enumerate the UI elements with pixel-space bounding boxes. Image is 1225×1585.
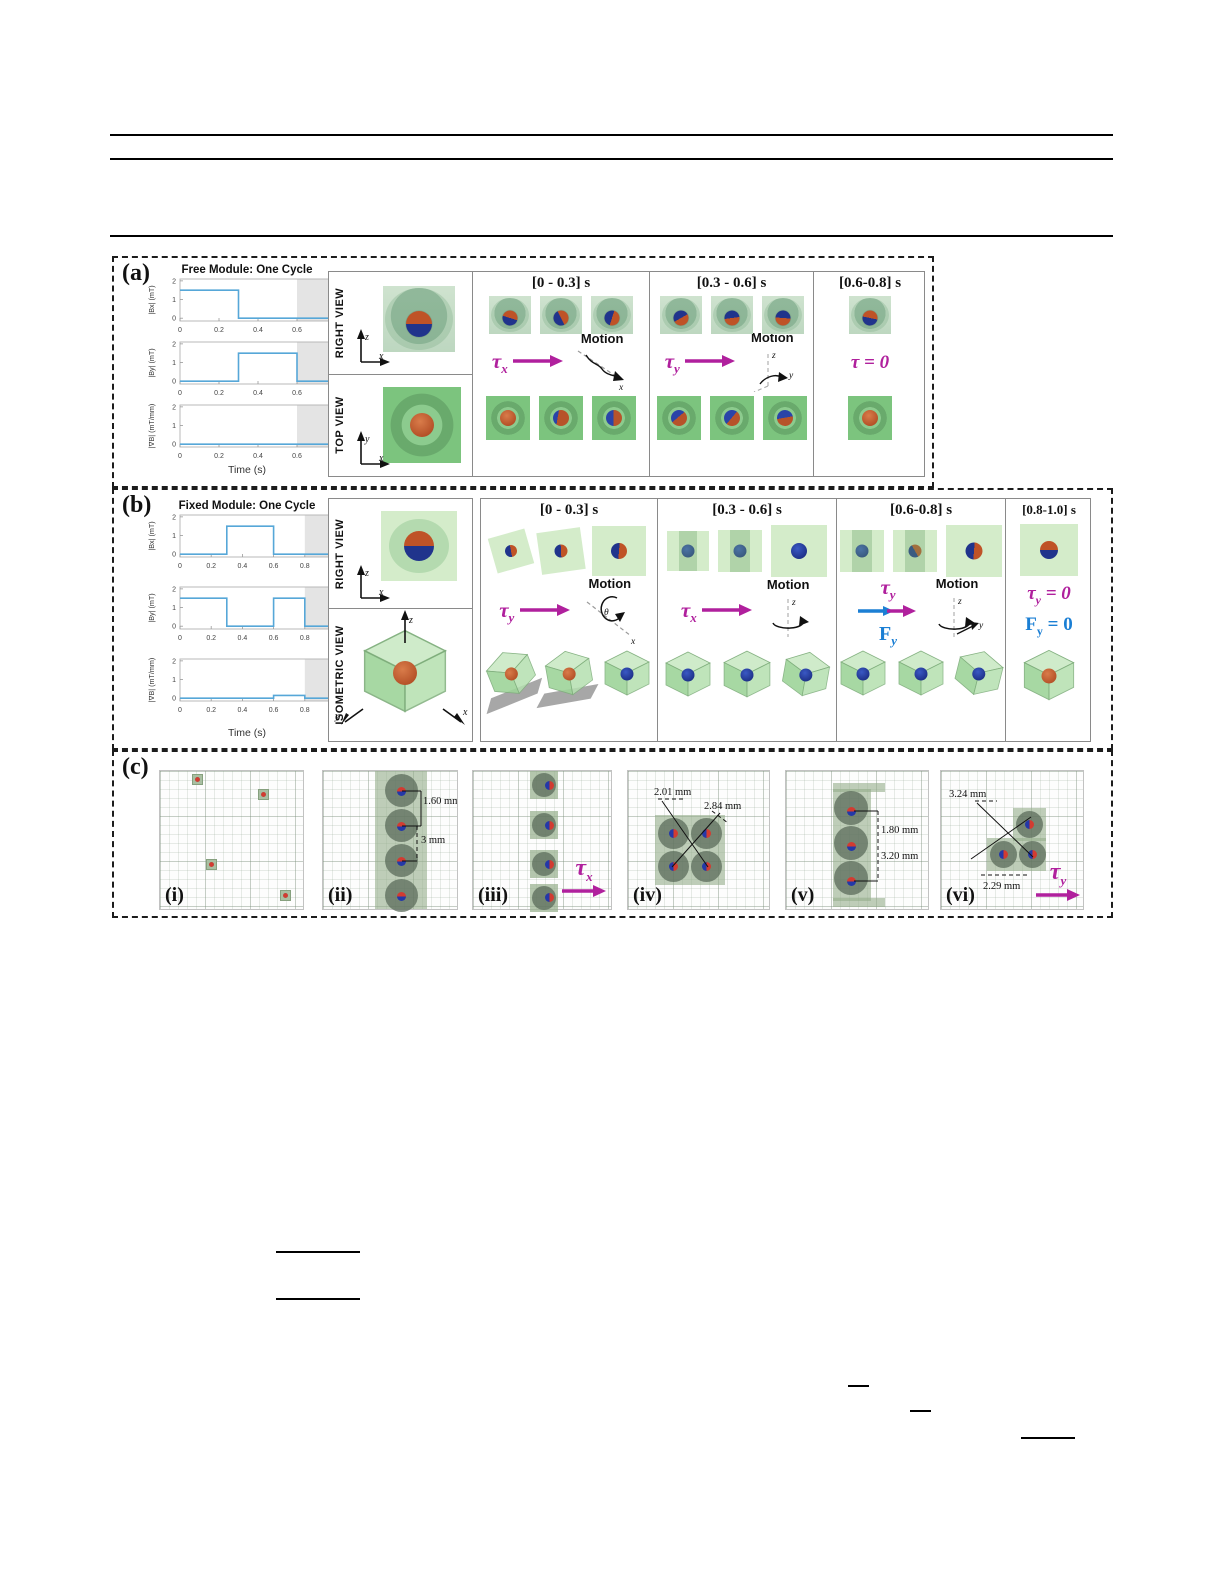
- time-column: [0.3 - 0.6] s τx Motion z: [657, 499, 836, 741]
- force-symbol: F: [879, 623, 891, 645]
- svg-text:|By| (mT): |By| (mT): [147, 348, 156, 377]
- torque-label-block: τx: [681, 598, 753, 626]
- module-image: [1020, 524, 1078, 576]
- module-image: [771, 525, 827, 577]
- svg-text:|By| (mT): |By| (mT): [147, 593, 156, 622]
- svg-text:2: 2: [172, 404, 176, 411]
- module-image: [657, 396, 701, 440]
- chart-title: Fixed Module: One Cycle: [146, 500, 348, 512]
- svg-text:1: 1: [172, 297, 176, 304]
- chart-plots: 01200.20.40.60.8|Bx| (mT)01200.20.40.60.…: [146, 277, 348, 463]
- module-image: [192, 774, 203, 785]
- time-column: [0 - 0.3] s τx Motion: [473, 272, 649, 476]
- torque-symbol: τ: [492, 349, 501, 373]
- dimension-label: 1.80 mm: [881, 825, 918, 836]
- panel-c-label: (c): [122, 754, 149, 781]
- svg-text:0.2: 0.2: [214, 390, 224, 397]
- view-box: RIGHT VIEW z x ISOMETRIC VIEW: [328, 498, 473, 742]
- frame-strip: [650, 396, 813, 440]
- module-image: [540, 645, 598, 701]
- torque-arrow: [684, 354, 736, 368]
- module-image: [718, 530, 762, 572]
- svg-text:1: 1: [172, 360, 176, 367]
- svg-text:0: 0: [172, 316, 176, 323]
- dimension-label: 3 mm: [421, 835, 445, 846]
- magnet-sphere: [404, 531, 434, 561]
- magnet-dot: [545, 860, 554, 869]
- top-view-cell: TOP VIEW y x: [329, 375, 472, 477]
- module-image: [660, 296, 702, 334]
- axis-label: y: [334, 711, 340, 722]
- module-image: [1021, 648, 1077, 702]
- torque-arrow: [561, 885, 607, 898]
- torque-symbol: τ: [1050, 859, 1061, 885]
- torque-label-block: τy: [499, 598, 571, 626]
- chart-xlabel: Time (s): [146, 464, 348, 476]
- axis-label: y: [364, 434, 370, 445]
- svg-text:2: 2: [172, 341, 176, 348]
- svg-text:0.2: 0.2: [206, 563, 216, 570]
- svg-text:1: 1: [172, 533, 176, 540]
- torque-arrow: [519, 603, 571, 617]
- view-box: RIGHT VIEW z x TOP VIEW: [328, 271, 473, 477]
- motion-axis-label: y: [978, 621, 984, 631]
- module-image: [849, 296, 891, 334]
- torque-label-block: τy: [1035, 859, 1081, 907]
- frame-strip: [658, 649, 836, 699]
- module-image: [667, 531, 709, 571]
- motion-label: Motion: [763, 577, 813, 592]
- time-range-header: [0.8-1.0] s: [1006, 502, 1092, 518]
- torque-subscript: x: [501, 361, 508, 376]
- svg-text:0.2: 0.2: [214, 453, 224, 460]
- right-view-cell: RIGHT VIEW z x: [329, 499, 472, 609]
- svg-text:0: 0: [178, 563, 182, 570]
- svg-text:|∇B| (mT/mm): |∇B| (mT/mm): [147, 658, 156, 702]
- axes-glyph: z y x: [329, 609, 474, 741]
- torque-symbol: τ: [665, 349, 674, 373]
- dimension-label: 2.84 mm: [704, 801, 741, 812]
- isometric-view-cell: ISOMETRIC VIEW z y x: [329, 609, 472, 741]
- frame-strip: [473, 396, 649, 440]
- force-subscript: y: [891, 633, 897, 648]
- module-image: [762, 296, 804, 334]
- torque-label-block: τy: [665, 349, 737, 377]
- svg-text:1: 1: [172, 423, 176, 430]
- module-image: [711, 296, 753, 334]
- subpanel-label: (vi): [946, 884, 975, 907]
- module-image: [489, 296, 531, 334]
- motion-sketch: Motion z: [763, 577, 813, 648]
- module-image: [592, 526, 646, 576]
- time-column: [0 - 0.3] s τy Motion: [481, 499, 657, 741]
- module-image: [838, 649, 888, 697]
- frame-strip: [481, 649, 657, 697]
- svg-text:|Bx| (mT): |Bx| (mT): [147, 285, 156, 314]
- module-image: [539, 396, 583, 440]
- subpanel-iv: 2.01 mm 2.84 mm (iv): [627, 770, 770, 910]
- torque-arrow: [701, 603, 753, 617]
- torque-symbol: τ: [575, 855, 586, 881]
- torque-label-block: τx: [492, 349, 564, 377]
- subpanel-iii: τx (iii): [472, 770, 612, 910]
- frame-strip: [481, 523, 657, 579]
- motion-label: Motion: [929, 576, 985, 591]
- svg-text:0: 0: [178, 390, 182, 397]
- chart-xlabel: Time (s): [146, 727, 348, 739]
- axis-label: x: [378, 351, 384, 362]
- timeline-columns: [0 - 0.3] s τx Motion: [472, 271, 925, 477]
- svg-text:0.6: 0.6: [292, 390, 302, 397]
- svg-text:0.4: 0.4: [238, 635, 248, 642]
- subpanel-label: (ii): [328, 884, 352, 907]
- dimension-label: 3.20 mm: [881, 851, 918, 862]
- module-image: [602, 649, 652, 697]
- torque-symbol: τ: [681, 598, 690, 622]
- time-range-header: [0 - 0.3] s: [481, 502, 657, 519]
- module-image: [721, 649, 773, 699]
- svg-text:2: 2: [172, 658, 176, 665]
- text-fragment-rule: [1021, 1437, 1075, 1439]
- svg-text:0: 0: [172, 696, 176, 703]
- svg-text:1: 1: [172, 605, 176, 612]
- motion-axis-label: x: [630, 637, 636, 644]
- torque-zero-label: τ = 0: [851, 352, 889, 374]
- module-image: [383, 387, 461, 463]
- axis-label: x: [378, 453, 384, 464]
- svg-text:0.4: 0.4: [238, 563, 248, 570]
- module-image: [540, 296, 582, 334]
- svg-text:0.2: 0.2: [206, 707, 216, 714]
- figure-panel-c: (c) (i) 1.60 mm: [112, 750, 1113, 918]
- fixed-module-chart: Fixed Module: One Cycle 01200.20.40.60.8…: [146, 500, 348, 739]
- module-image: [763, 396, 807, 440]
- module-image: [479, 641, 543, 704]
- svg-text:0.4: 0.4: [253, 390, 263, 397]
- torque-subscript: y: [1060, 873, 1066, 888]
- text-fragment-rule: [848, 1385, 869, 1387]
- frame-strip: [658, 523, 836, 579]
- magnet-dot: [545, 893, 554, 902]
- svg-text:0.4: 0.4: [253, 327, 263, 334]
- torque-symbol: τ: [880, 575, 889, 599]
- free-module-chart: Free Module: One Cycle 01200.20.40.60.8|…: [146, 264, 348, 476]
- svg-text:2: 2: [172, 586, 176, 593]
- magnet-sphere: [410, 413, 434, 437]
- subpanel-v: 1.80 mm 3.20 mm (v): [785, 770, 929, 910]
- svg-text:0.6: 0.6: [269, 635, 279, 642]
- module-image: [893, 530, 937, 572]
- axes-glyph: y x: [353, 430, 393, 470]
- figure-panel-b: (b) Fixed Module: One Cycle 01200.20.40.…: [112, 488, 1113, 750]
- torque-symbol: τ: [499, 598, 508, 622]
- module-image: [840, 530, 884, 572]
- module-image: [949, 644, 1009, 703]
- motion-axis-label: z: [771, 351, 776, 361]
- magnet-dot: [545, 781, 554, 790]
- module-image: [486, 396, 530, 440]
- module-image: [710, 396, 754, 440]
- dimension-label: 1.60 mm: [423, 796, 457, 807]
- svg-text:0.2: 0.2: [214, 327, 224, 334]
- svg-text:|Bx| (mT): |Bx| (mT): [147, 521, 156, 550]
- motion-axis-label: x: [618, 383, 624, 391]
- dimension-label: 2.29 mm: [983, 881, 1020, 892]
- module-image: [383, 286, 455, 352]
- dimension-label: 2.01 mm: [654, 787, 691, 798]
- motion-axis-label: z: [791, 598, 796, 608]
- svg-text:0: 0: [172, 442, 176, 449]
- svg-text:0.4: 0.4: [253, 453, 263, 460]
- time-column: [0.3 - 0.6] s τy Motion: [649, 272, 813, 476]
- module-image: [896, 649, 946, 697]
- subpanel-label: (iii): [478, 884, 508, 907]
- torque-force-arrow: [857, 604, 919, 618]
- time-range-header: [0.6-0.8] s: [814, 275, 926, 292]
- torque-arrow: [1035, 889, 1081, 902]
- frame-strip: [1006, 648, 1092, 702]
- module-image: [280, 890, 291, 901]
- module-image: [488, 528, 534, 573]
- module-image: [206, 859, 217, 870]
- svg-text:0.2: 0.2: [206, 635, 216, 642]
- header-rule: [110, 134, 1113, 136]
- motion-sketch: Motion θ x: [581, 576, 639, 649]
- module-image: [258, 789, 269, 800]
- subpanel-label: (v): [791, 884, 814, 907]
- subpanel-label: (i): [165, 884, 184, 907]
- module-image: [777, 646, 835, 702]
- axis-label: z: [408, 615, 413, 626]
- frame-strip: [473, 296, 649, 334]
- motion-axis-label: y: [788, 371, 794, 381]
- torque-subscript: y: [509, 610, 515, 625]
- frame-strip: [814, 296, 926, 334]
- svg-text:0.6: 0.6: [292, 327, 302, 334]
- text-fragment-rule: [276, 1251, 360, 1253]
- module-image: [848, 396, 892, 440]
- subpanel-i: (i): [159, 770, 304, 910]
- motion-sketch: Motion z y: [929, 576, 985, 649]
- frame-strip: [837, 523, 1005, 579]
- motion-label: Motion: [581, 576, 639, 591]
- text-fragment-rule: [910, 1410, 931, 1412]
- svg-text:0: 0: [178, 327, 182, 334]
- motion-sketch: Motion x: [574, 331, 630, 396]
- module-image: [946, 525, 1002, 577]
- torque-force-block: τy Fy: [857, 575, 919, 648]
- time-range-header: [0 - 0.3] s: [473, 275, 649, 292]
- svg-text:0.8: 0.8: [300, 563, 310, 570]
- svg-text:0: 0: [172, 552, 176, 559]
- header-rule: [110, 235, 1113, 237]
- module-image: [663, 650, 713, 698]
- time-column: [0.6-0.8] s τy Fy: [836, 499, 1005, 741]
- axis-label: x: [378, 587, 384, 598]
- svg-text:|∇B| (mT/mm): |∇B| (mT/mm): [147, 404, 156, 448]
- torque-subscript: y: [674, 361, 680, 376]
- svg-text:1: 1: [172, 677, 176, 684]
- magnet-sphere: [406, 311, 432, 337]
- frame-strip: [1006, 522, 1092, 578]
- svg-text:0.8: 0.8: [300, 635, 310, 642]
- figure-panel-a: (a) Free Module: One Cycle 01200.20.40.6…: [112, 256, 934, 488]
- text-fragment-rule: [276, 1298, 360, 1300]
- subpanel-label: (iv): [633, 884, 662, 907]
- svg-text:0.4: 0.4: [238, 707, 248, 714]
- svg-text:2: 2: [172, 278, 176, 285]
- dimension-label: 3.24 mm: [949, 789, 986, 800]
- axes-glyph: z x: [353, 564, 393, 604]
- axis-label: z: [364, 568, 369, 579]
- module-image: [591, 296, 633, 334]
- module-image: [536, 527, 585, 575]
- motion-axis-label: θ: [604, 608, 609, 618]
- svg-text:0: 0: [172, 624, 176, 631]
- svg-text:0: 0: [178, 707, 182, 714]
- svg-text:0.6: 0.6: [269, 563, 279, 570]
- svg-text:0.8: 0.8: [300, 707, 310, 714]
- torque-subscript: x: [586, 869, 593, 884]
- svg-text:0.6: 0.6: [269, 707, 279, 714]
- time-column: [0.6-0.8] s τ = 0: [813, 272, 926, 476]
- svg-text:0: 0: [172, 379, 176, 386]
- force-zero-label: Fy = 0: [1025, 614, 1072, 639]
- torque-label-block: τx: [561, 855, 607, 903]
- time-column: [0.8-1.0] s τy = 0 Fy = 0: [1005, 499, 1092, 741]
- axis-label: x: [462, 707, 468, 718]
- torque-subscript: y: [890, 588, 896, 603]
- svg-text:0.6: 0.6: [292, 453, 302, 460]
- subpanel-ii: 1.60 mm 3 mm (ii): [322, 770, 458, 910]
- chart-title: Free Module: One Cycle: [146, 264, 348, 276]
- frame-strip: [650, 296, 813, 334]
- paper-page: (a) Free Module: One Cycle 01200.20.40.6…: [0, 0, 1225, 1585]
- subpanel-vi: 3.24 mm 2.29 mm τy (vi): [940, 770, 1084, 910]
- header-rule: [110, 158, 1113, 160]
- svg-text:2: 2: [172, 514, 176, 521]
- motion-sketch: Motion z y: [746, 330, 798, 397]
- right-view-cell: RIGHT VIEW z x: [329, 272, 472, 375]
- time-range-header: [0.3 - 0.6] s: [658, 502, 836, 519]
- frame-strip: [837, 649, 1005, 697]
- module-image: [592, 396, 636, 440]
- magnet-dot: [545, 821, 554, 830]
- axis-label: z: [364, 332, 369, 343]
- torque-subscript: x: [690, 610, 697, 625]
- timeline-columns: [0 - 0.3] s τy Motion: [480, 498, 1091, 742]
- top-view-label: TOP VIEW: [334, 397, 346, 454]
- axes-glyph: z x: [353, 328, 393, 368]
- torque-arrow: [512, 354, 564, 368]
- frame-strip: [814, 396, 926, 440]
- time-range-header: [0.6-0.8] s: [837, 502, 1005, 519]
- time-range-header: [0.3 - 0.6] s: [650, 275, 813, 292]
- right-view-label: RIGHT VIEW: [334, 288, 346, 358]
- torque-zero-label: τy = 0: [1027, 583, 1071, 608]
- chart-plots: 01200.20.40.60.81|Bx| (mT)01200.20.40.60…: [146, 513, 348, 717]
- motion-axis-label: z: [957, 597, 962, 607]
- svg-text:0: 0: [178, 635, 182, 642]
- svg-text:0: 0: [178, 453, 182, 460]
- right-view-label: RIGHT VIEW: [334, 518, 346, 588]
